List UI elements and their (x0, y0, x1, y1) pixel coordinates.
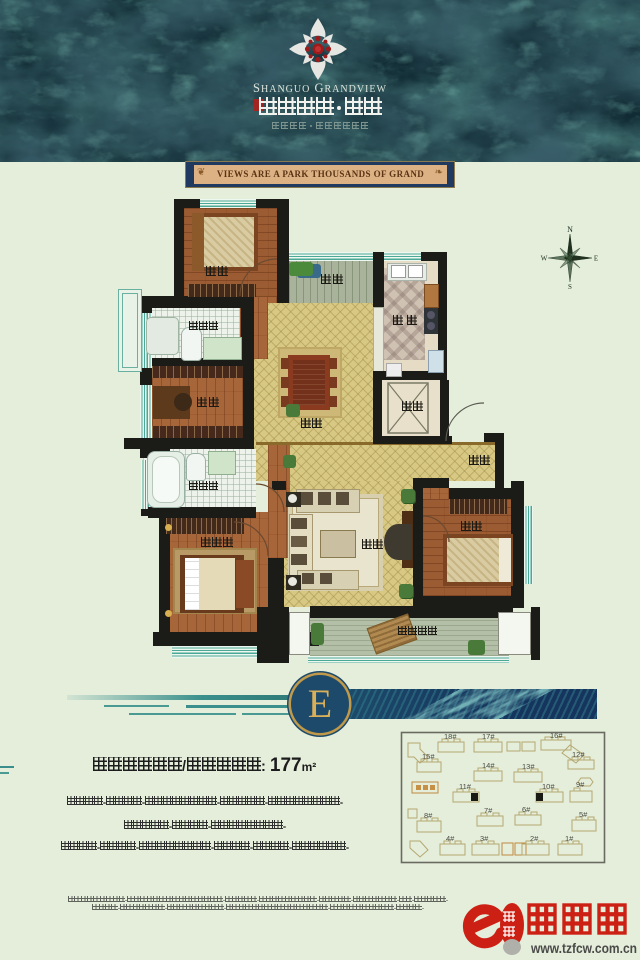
svg-text:www.tzfcw.com.cn: www.tzfcw.com.cn (530, 940, 637, 956)
svg-text:1#: 1# (565, 834, 574, 843)
svg-text:5#: 5# (579, 810, 588, 819)
svg-text:N: N (567, 226, 573, 234)
svg-text:11#: 11# (459, 782, 472, 791)
svg-text:6#: 6# (522, 805, 531, 814)
svg-text:W: W (541, 255, 548, 263)
svg-text:15#: 15# (422, 752, 435, 761)
svg-text:S: S (568, 283, 572, 290)
svg-text:18#: 18# (444, 732, 457, 741)
svg-text:14#: 14# (482, 761, 495, 770)
svg-text:16#: 16# (550, 731, 563, 740)
svg-text:17#: 17# (482, 732, 495, 741)
svg-text:7#: 7# (484, 806, 493, 815)
svg-text:2#: 2# (530, 834, 539, 843)
svg-text:4#: 4# (446, 834, 455, 843)
svg-text:3#: 3# (480, 834, 489, 843)
svg-text:13#: 13# (522, 762, 535, 771)
svg-text:9#: 9# (576, 780, 585, 789)
svg-text:12#: 12# (572, 750, 585, 759)
svg-text:8#: 8# (424, 811, 433, 820)
svg-text:E: E (594, 255, 598, 263)
svg-text:10#: 10# (542, 782, 555, 791)
